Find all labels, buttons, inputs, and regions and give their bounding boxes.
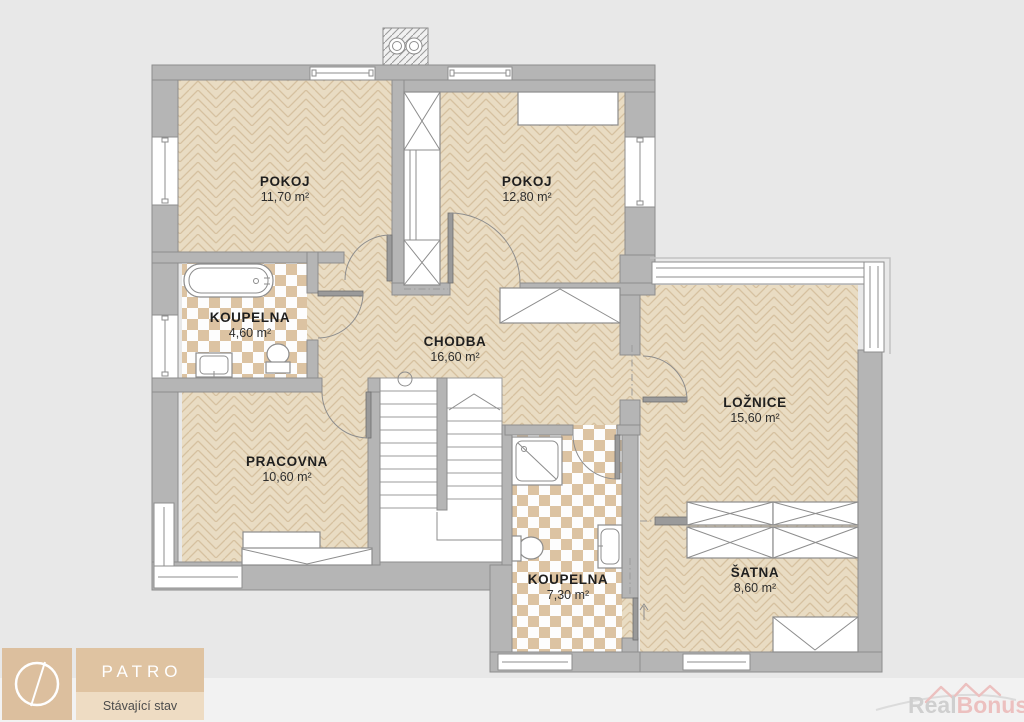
staircase bbox=[380, 372, 502, 565]
chimney-flue bbox=[406, 38, 422, 54]
room-area-koupelna-2: 7,30 m² bbox=[547, 588, 589, 602]
window-bottom-koupelna2 bbox=[498, 654, 572, 670]
stair-divider-wall bbox=[437, 378, 447, 510]
room-area-pokoj-2: 12,80 m² bbox=[502, 190, 551, 204]
window-left-koupelna1 bbox=[152, 315, 178, 378]
room-label-pokoj-1: POKOJ bbox=[260, 174, 310, 189]
window-top-pokoj2 bbox=[448, 67, 512, 80]
chimney-flue bbox=[389, 38, 405, 54]
room-area-chodba: 16,60 m² bbox=[430, 350, 479, 364]
status-label: Stávající stav bbox=[103, 699, 178, 713]
room-area-pokoj-1: 11,70 m² bbox=[261, 190, 309, 204]
room-area-pracovna: 10,60 m² bbox=[262, 470, 311, 484]
wardrobes-loznice bbox=[687, 502, 858, 525]
toilet bbox=[266, 344, 290, 373]
window-top-pokoj1 bbox=[310, 67, 375, 80]
floor-chodba-west bbox=[318, 263, 392, 378]
room-label-satna: ŠATNA bbox=[731, 565, 780, 580]
room-area-loznice: 15,60 m² bbox=[730, 411, 779, 425]
wardrobe-chodba bbox=[500, 288, 620, 323]
room-label-pracovna: PRACOVNA bbox=[246, 454, 328, 469]
watermark-text: RealBonus.cz bbox=[908, 692, 1024, 718]
room-label-loznice: LOŽNICE bbox=[723, 395, 786, 410]
window-bottom-satna bbox=[683, 654, 750, 670]
title-block: PATRO Stávající stav bbox=[2, 648, 204, 720]
room-area-satna: 8,60 m² bbox=[734, 581, 776, 595]
bathtub bbox=[184, 264, 273, 297]
floorplan-svg: POKOJ 11,70 m² POKOJ 12,80 m² KOUPELNA 4… bbox=[0, 0, 1024, 722]
toilet-koupelna2 bbox=[512, 536, 543, 561]
room-label-pokoj-2: POKOJ bbox=[502, 174, 552, 189]
washbasin-koupelna2 bbox=[598, 525, 622, 568]
floorplan-canvas: POKOJ 11,70 m² POKOJ 12,80 m² KOUPELNA 4… bbox=[0, 0, 1024, 722]
shower bbox=[512, 437, 562, 485]
room-label-koupelna-2: KOUPELNA bbox=[528, 572, 609, 587]
floor-pokoj-1 bbox=[178, 80, 392, 252]
floor-label: PATRO bbox=[101, 662, 182, 681]
wardrobe-pokoj2 bbox=[404, 92, 440, 285]
room-area-koupelna-1: 4,60 m² bbox=[229, 326, 271, 340]
window-left-pokoj1 bbox=[152, 137, 178, 205]
room-label-koupelna-1: KOUPELNA bbox=[210, 310, 291, 325]
bed-pokoj2 bbox=[518, 92, 618, 125]
window-right-pokoj2 bbox=[625, 137, 655, 207]
room-label-chodba: CHODBA bbox=[424, 334, 487, 349]
sink bbox=[196, 353, 232, 377]
chimney bbox=[383, 28, 428, 65]
